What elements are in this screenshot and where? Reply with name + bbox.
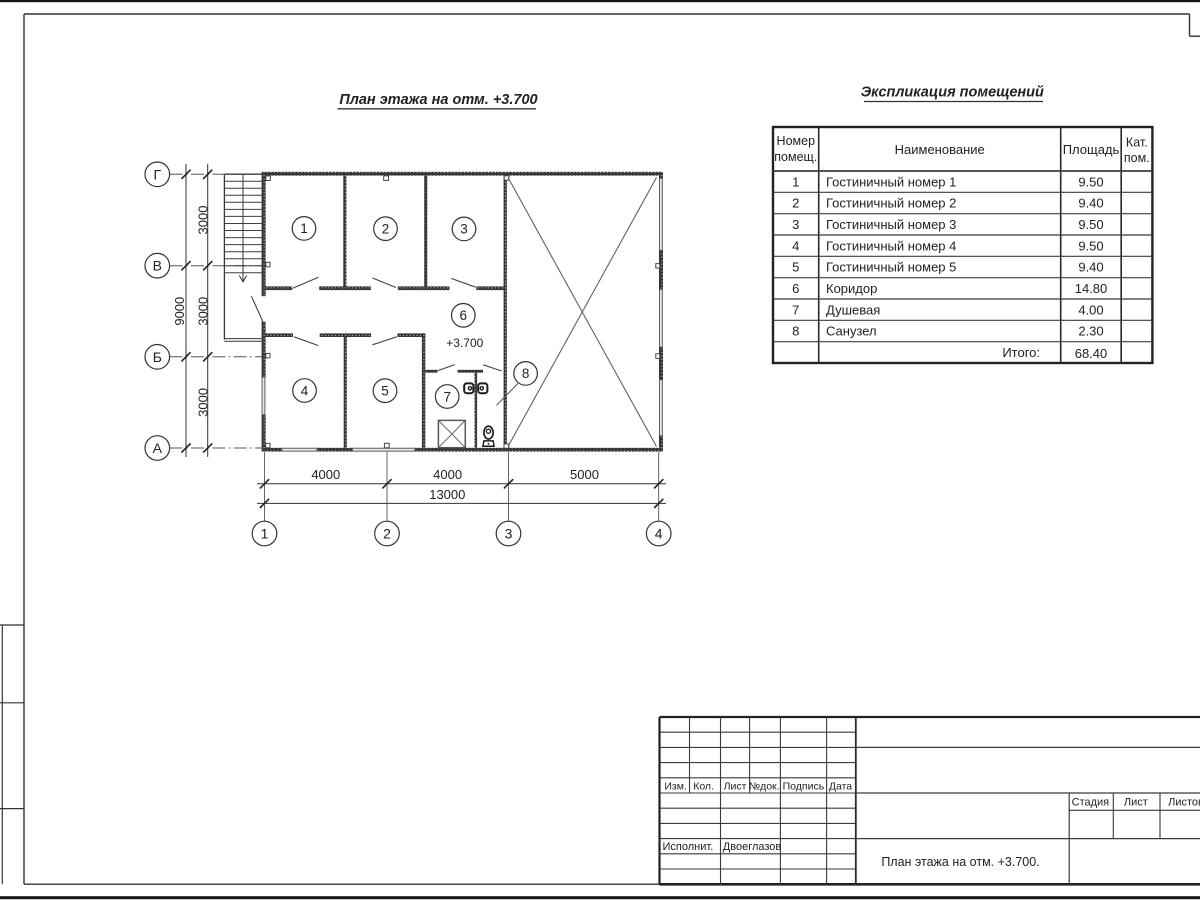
svg-text:+3.700: +3.700 bbox=[446, 336, 483, 350]
svg-text:Двоеглазов: Двоеглазов bbox=[723, 841, 782, 853]
svg-text:Гостиничный номер 2: Гостиничный номер 2 bbox=[826, 196, 956, 211]
svg-text:3: 3 bbox=[792, 217, 799, 232]
svg-text:Листов: Листов bbox=[1168, 797, 1200, 809]
svg-text:Изм.: Изм. bbox=[664, 780, 687, 792]
svg-text:4000: 4000 bbox=[433, 467, 462, 482]
svg-text:5: 5 bbox=[381, 384, 389, 399]
svg-text:3000: 3000 bbox=[196, 206, 211, 235]
svg-text:Гостиничный номер 4: Гостиничный номер 4 bbox=[826, 238, 956, 253]
svg-text:Гостиничный номер 1: Гостиничный номер 1 bbox=[826, 174, 956, 189]
svg-text:Стадия: Стадия bbox=[1072, 797, 1110, 809]
svg-text:9.50: 9.50 bbox=[1078, 174, 1103, 189]
svg-text:7: 7 bbox=[443, 389, 451, 404]
svg-text:В: В bbox=[153, 258, 162, 274]
svg-text:3: 3 bbox=[460, 222, 468, 237]
svg-text:Б: Б bbox=[153, 349, 162, 365]
svg-text:2: 2 bbox=[383, 526, 391, 542]
svg-text:3000: 3000 bbox=[196, 388, 211, 417]
svg-text:Санузел: Санузел bbox=[826, 324, 877, 339]
svg-text:9000: 9000 bbox=[172, 297, 187, 326]
svg-text:8: 8 bbox=[522, 366, 530, 381]
svg-text:Коридор: Коридор bbox=[826, 281, 877, 296]
svg-text:2.30: 2.30 bbox=[1078, 324, 1103, 339]
svg-text:8: 8 bbox=[792, 324, 799, 339]
svg-text:пом.: пом. bbox=[1124, 151, 1150, 165]
svg-text:6: 6 bbox=[792, 281, 799, 296]
svg-text:Дата: Дата bbox=[829, 780, 852, 792]
svg-text:Наименование: Наименование bbox=[895, 142, 985, 157]
svg-text:13000: 13000 bbox=[429, 487, 465, 502]
svg-text:помещ.: помещ. bbox=[774, 150, 817, 164]
svg-text:План этажа на отм. +3.700: План этажа на отм. +3.700 bbox=[339, 92, 537, 108]
svg-text:4.00: 4.00 bbox=[1078, 302, 1103, 317]
svg-text:68.40: 68.40 bbox=[1075, 346, 1108, 361]
svg-text:Г: Г bbox=[154, 166, 162, 182]
svg-text:План этажа на отм. +3.700.: План этажа на отм. +3.700. bbox=[881, 855, 1039, 869]
svg-text:9.50: 9.50 bbox=[1078, 238, 1103, 253]
svg-text:Лист: Лист bbox=[724, 780, 747, 792]
svg-text:Площадь: Площадь bbox=[1063, 142, 1120, 157]
svg-text:7: 7 bbox=[792, 302, 799, 317]
svg-text:5000: 5000 bbox=[570, 467, 599, 482]
svg-text:9.40: 9.40 bbox=[1078, 196, 1103, 211]
svg-text:5: 5 bbox=[792, 260, 799, 275]
svg-text:3: 3 bbox=[505, 526, 513, 542]
svg-text:2: 2 bbox=[382, 222, 390, 237]
svg-text:6: 6 bbox=[460, 308, 468, 323]
svg-text:Гостиничный номер 3: Гостиничный номер 3 bbox=[826, 217, 956, 232]
svg-text:Гостиничный номер 5: Гостиничный номер 5 bbox=[826, 260, 956, 275]
svg-text:А: А bbox=[153, 440, 163, 456]
svg-text:1: 1 bbox=[300, 221, 308, 236]
svg-text:4: 4 bbox=[301, 383, 309, 398]
svg-text:Подпись: Подпись bbox=[783, 780, 825, 792]
svg-text:4: 4 bbox=[792, 238, 799, 253]
svg-text:1: 1 bbox=[261, 526, 269, 542]
svg-text:Кол.: Кол. bbox=[693, 780, 714, 792]
svg-text:9.40: 9.40 bbox=[1078, 260, 1103, 275]
svg-text:2: 2 bbox=[792, 196, 799, 211]
svg-text:1: 1 bbox=[792, 174, 799, 189]
svg-text:4: 4 bbox=[655, 526, 663, 542]
svg-text:Душевая: Душевая bbox=[826, 302, 880, 317]
svg-text:4000: 4000 bbox=[311, 467, 340, 482]
svg-text:3000: 3000 bbox=[196, 297, 211, 326]
svg-text:Исполнит.: Исполнит. bbox=[663, 841, 714, 853]
svg-text:№док.: №док. bbox=[749, 780, 780, 792]
svg-text:Номер: Номер bbox=[777, 134, 816, 148]
svg-text:Кат.: Кат. bbox=[1126, 135, 1148, 149]
svg-text:Экспликация помещений: Экспликация помещений bbox=[861, 85, 1044, 101]
svg-text:Лист: Лист bbox=[1124, 797, 1148, 809]
svg-text:Итого:: Итого: bbox=[1002, 345, 1040, 360]
svg-text:14.80: 14.80 bbox=[1075, 281, 1108, 296]
svg-text:9.50: 9.50 bbox=[1078, 217, 1103, 232]
